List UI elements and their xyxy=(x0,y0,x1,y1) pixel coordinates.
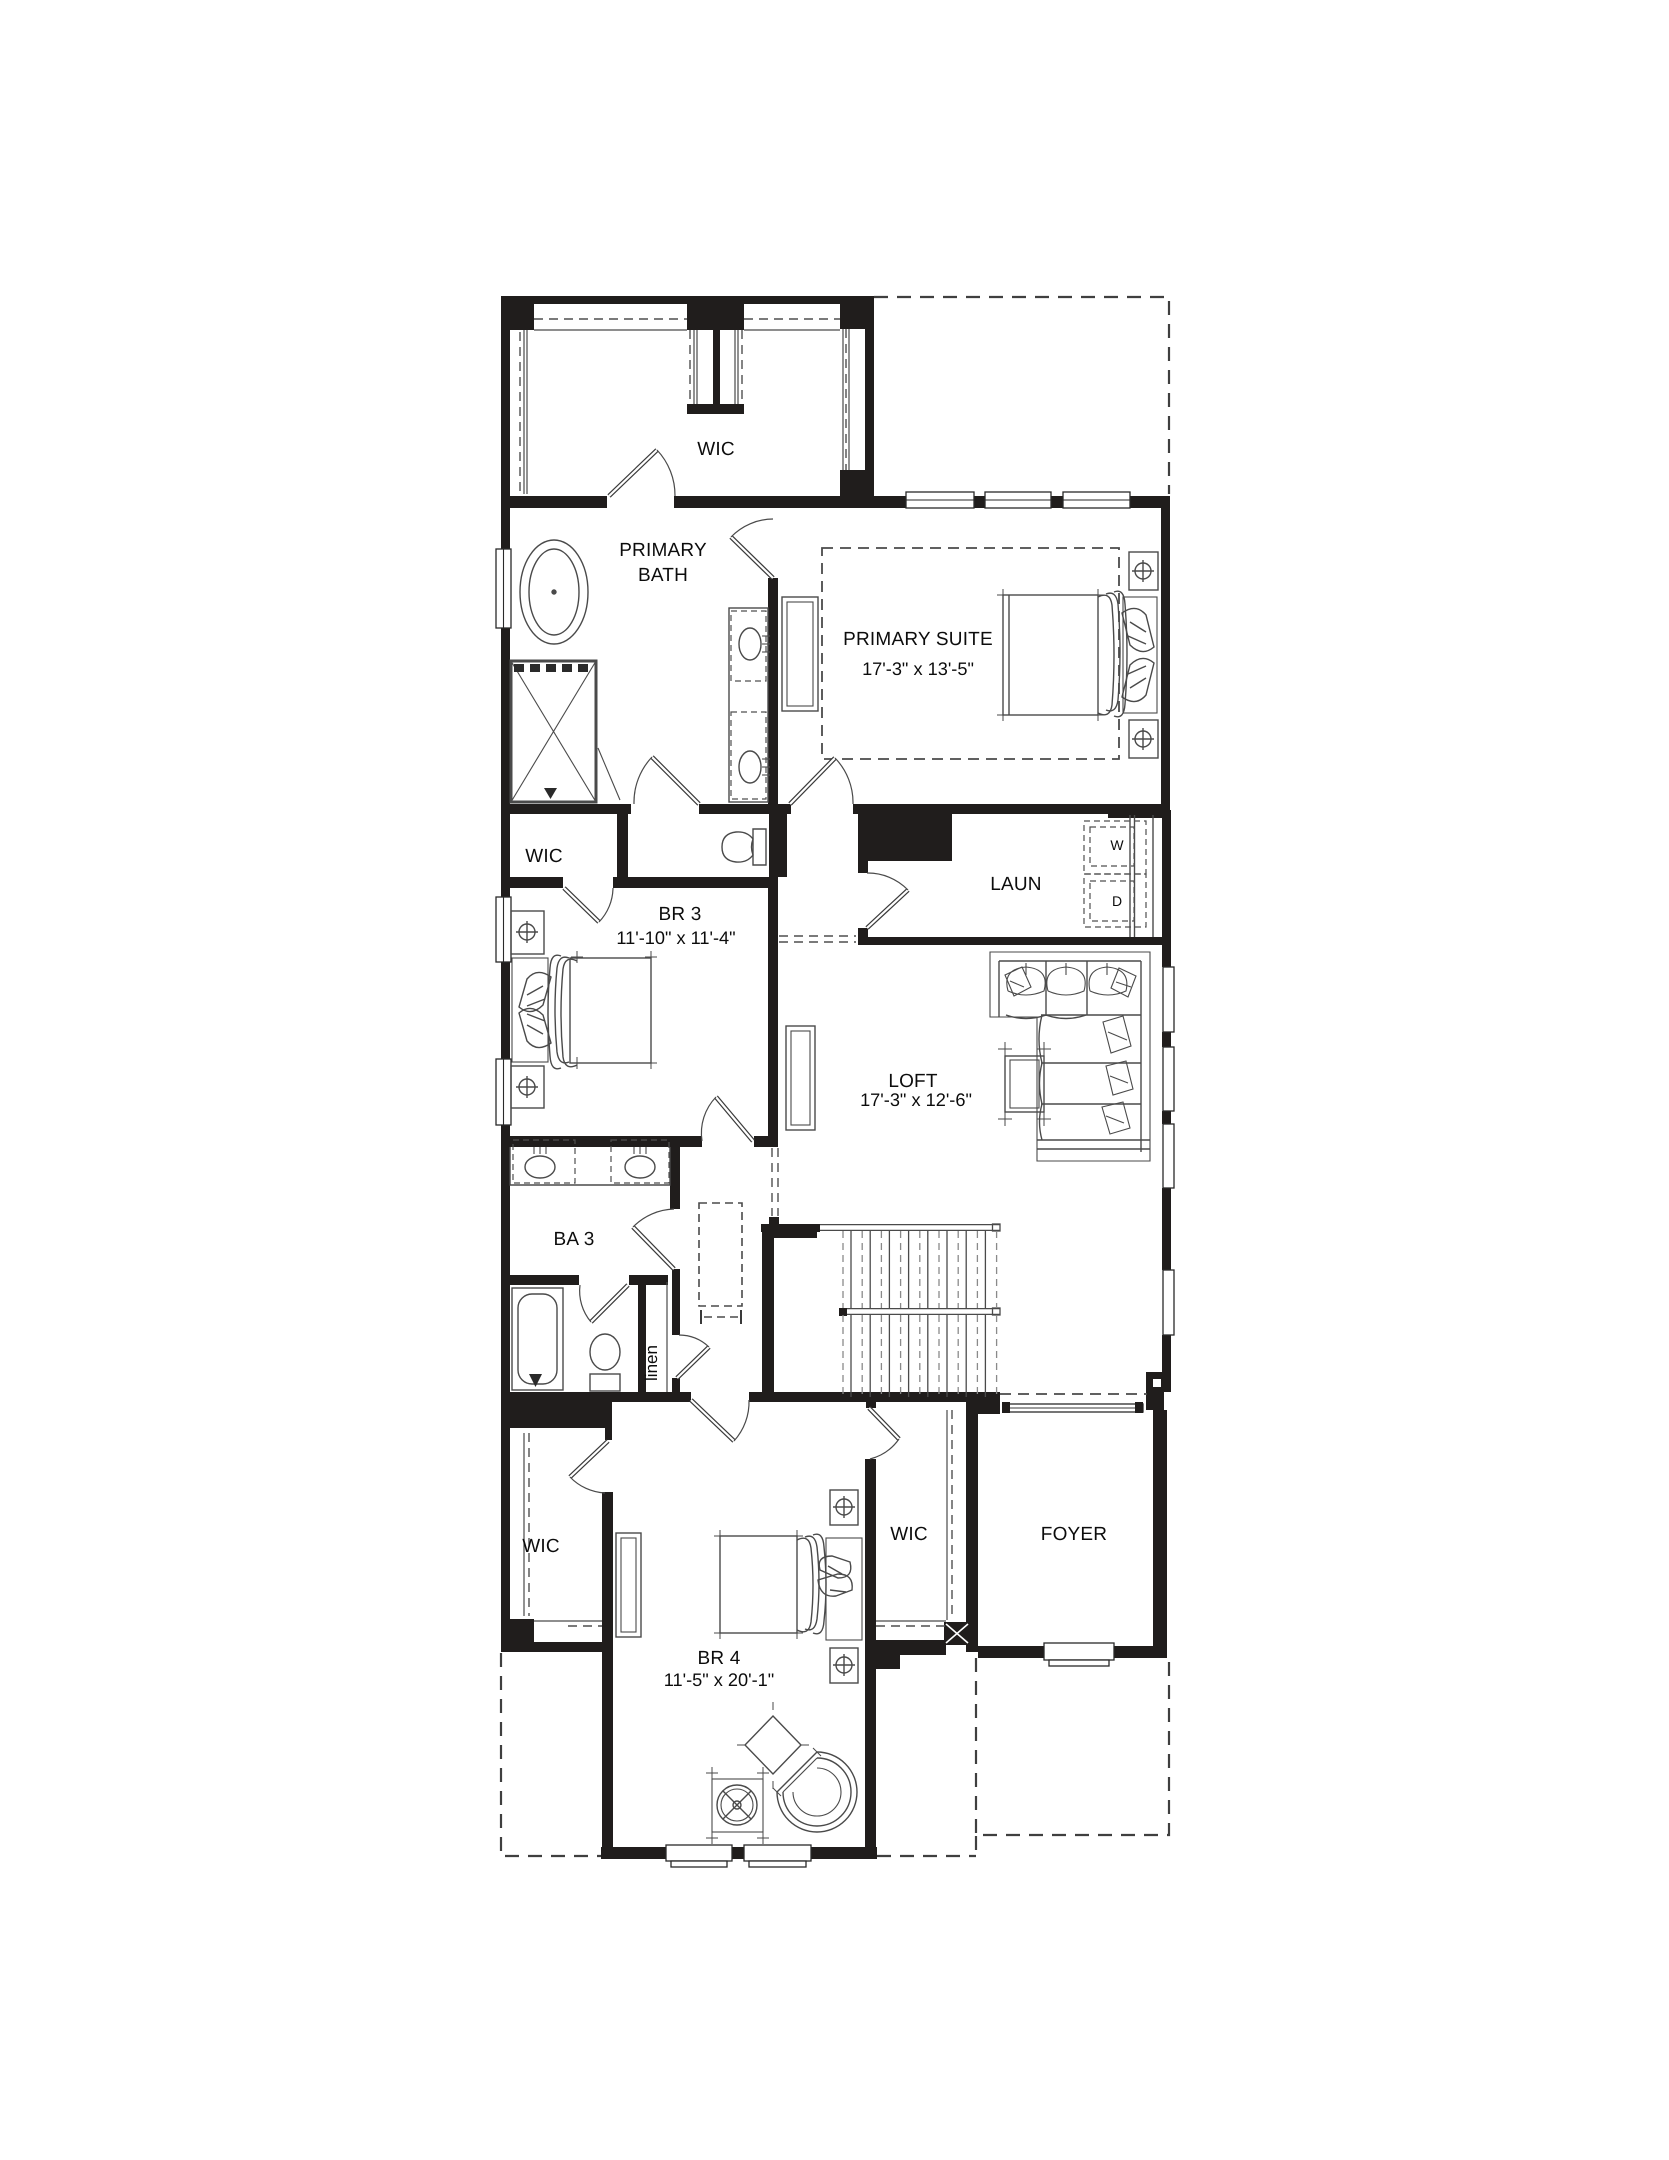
svg-text:WIC: WIC xyxy=(525,846,563,867)
svg-text:LOFT: LOFT xyxy=(888,1071,938,1092)
svg-text:W: W xyxy=(1110,837,1124,853)
svg-text:WIC: WIC xyxy=(890,1524,928,1545)
svg-text:BR 3: BR 3 xyxy=(658,904,701,925)
svg-text:BR 4: BR 4 xyxy=(697,1648,740,1669)
svg-text:LAUN: LAUN xyxy=(990,874,1041,895)
svg-text:D: D xyxy=(1112,893,1122,909)
svg-text:BATH: BATH xyxy=(638,565,688,586)
svg-text:PRIMARY: PRIMARY xyxy=(619,540,707,561)
svg-text:linen: linen xyxy=(642,1345,661,1381)
svg-text:BA 3: BA 3 xyxy=(554,1229,595,1250)
svg-text:11'-10" x 11'-4": 11'-10" x 11'-4" xyxy=(616,928,735,948)
svg-text:FOYER: FOYER xyxy=(1041,1524,1107,1545)
svg-text:11'-5" x 20'-1": 11'-5" x 20'-1" xyxy=(664,1670,775,1690)
svg-text:WIC: WIC xyxy=(522,1536,560,1557)
svg-text:17'-3" x 13'-5": 17'-3" x 13'-5" xyxy=(862,659,974,679)
svg-text:PRIMARY SUITE: PRIMARY SUITE xyxy=(843,629,993,650)
svg-text:17'-3" x 12'-6": 17'-3" x 12'-6" xyxy=(860,1090,972,1110)
svg-text:WIC: WIC xyxy=(697,439,735,460)
